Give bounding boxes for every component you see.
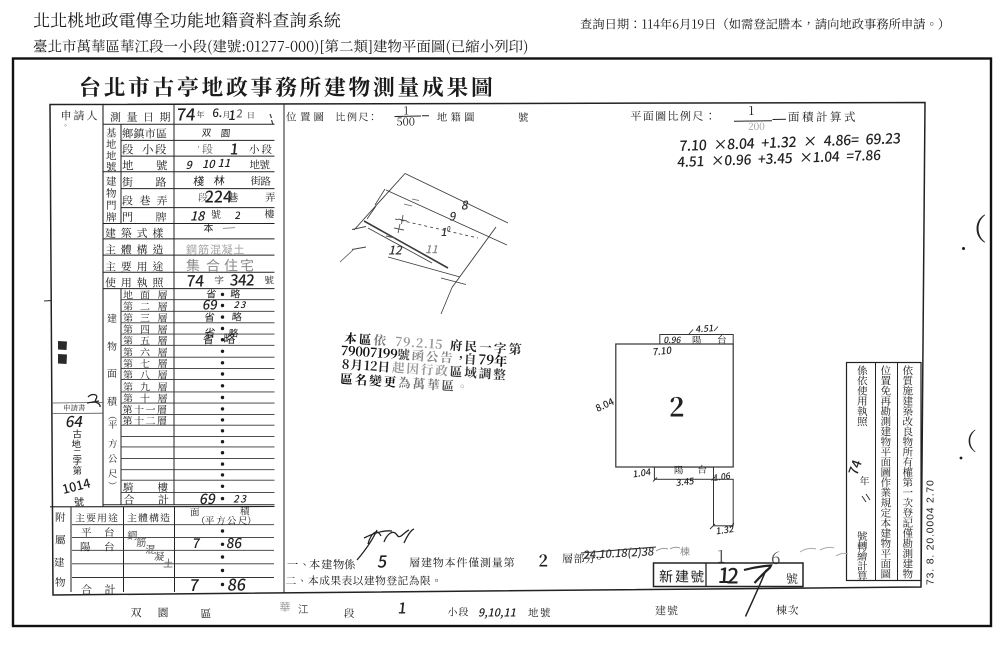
svg-text:73. 8. 20.0004 2.70: 73. 8. 20.0004 2.70 [925,479,937,585]
